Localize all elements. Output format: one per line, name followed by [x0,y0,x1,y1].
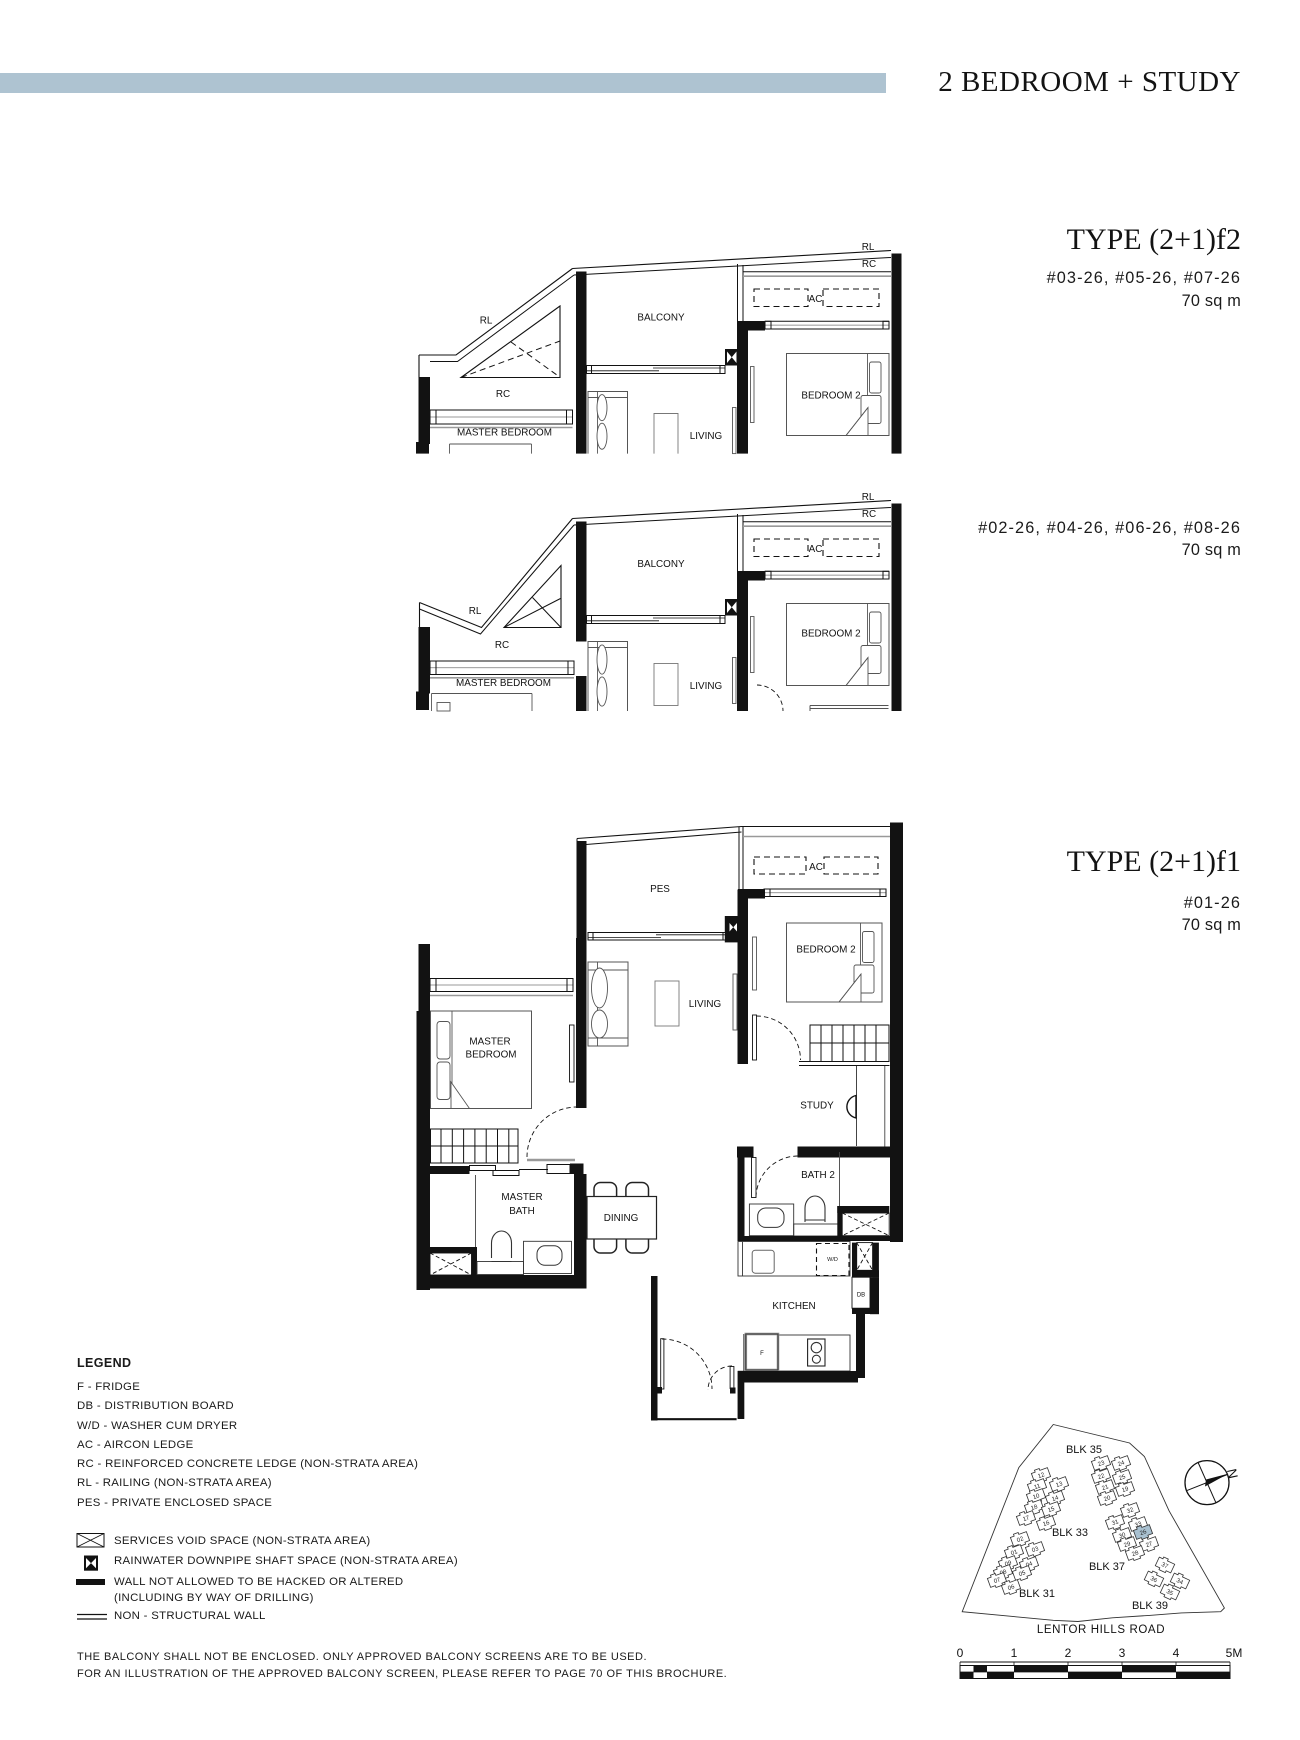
svg-text:DB: DB [857,1293,865,1299]
svg-text:4: 4 [1173,1646,1180,1660]
svg-text:AC: AC [809,862,823,873]
svg-text:PES: PES [650,884,670,895]
svg-text:RL: RL [862,242,875,253]
svg-text:DINING: DINING [604,1213,639,1224]
svg-text:0: 0 [957,1646,964,1660]
svg-text:AC: AC [809,294,823,305]
svg-text:RC: RC [495,640,509,651]
svg-text:KITCHEN: KITCHEN [772,1301,815,1312]
svg-text:BEDROOM 2: BEDROOM 2 [796,945,855,956]
svg-text:RC: RC [862,509,876,520]
svg-text:MASTER BEDROOM: MASTER BEDROOM [456,678,551,689]
svg-text:BLK 37: BLK 37 [1089,1561,1125,1573]
svg-text:MASTER BEDROOM: MASTER BEDROOM [457,428,552,439]
svg-text:LENTOR HILLS ROAD: LENTOR HILLS ROAD [1037,1624,1165,1636]
svg-text:LIVING: LIVING [690,681,722,692]
svg-text:BLK 33: BLK 33 [1052,1527,1088,1539]
svg-text:BLK 35: BLK 35 [1066,1444,1102,1456]
svg-text:W/D: W/D [827,1257,838,1263]
svg-text:LIVING: LIVING [689,999,721,1010]
svg-text:RL: RL [469,606,482,617]
svg-text:BALCONY: BALCONY [637,313,685,324]
svg-text:2: 2 [1065,1646,1072,1660]
svg-text:MASTER: MASTER [501,1192,542,1203]
svg-text:LIVING: LIVING [690,431,722,442]
svg-text:BEDROOM: BEDROOM [465,1050,516,1061]
svg-text:MASTER: MASTER [469,1037,510,1048]
svg-text:RC: RC [496,389,510,400]
svg-text:RL: RL [480,316,493,327]
svg-text:BEDROOM 2: BEDROOM 2 [801,629,860,640]
svg-text:BALCONY: BALCONY [637,559,685,570]
svg-text:BATH: BATH [509,1206,535,1217]
svg-text:5M: 5M [1226,1646,1243,1660]
svg-text:1: 1 [1011,1646,1018,1660]
svg-text:BLK 31: BLK 31 [1019,1588,1055,1600]
svg-text:STUDY: STUDY [800,1101,834,1112]
svg-text:F: F [760,1351,764,1357]
svg-text:RL: RL [862,492,875,503]
svg-text:BLK 39: BLK 39 [1132,1600,1168,1612]
svg-text:RC: RC [862,259,876,270]
svg-text:AC: AC [809,544,823,555]
svg-text:BEDROOM 2: BEDROOM 2 [801,391,860,402]
svg-text:3: 3 [1119,1646,1126,1660]
svg-text:BATH 2: BATH 2 [801,1170,835,1181]
svg-text:N: N [1224,1467,1241,1480]
